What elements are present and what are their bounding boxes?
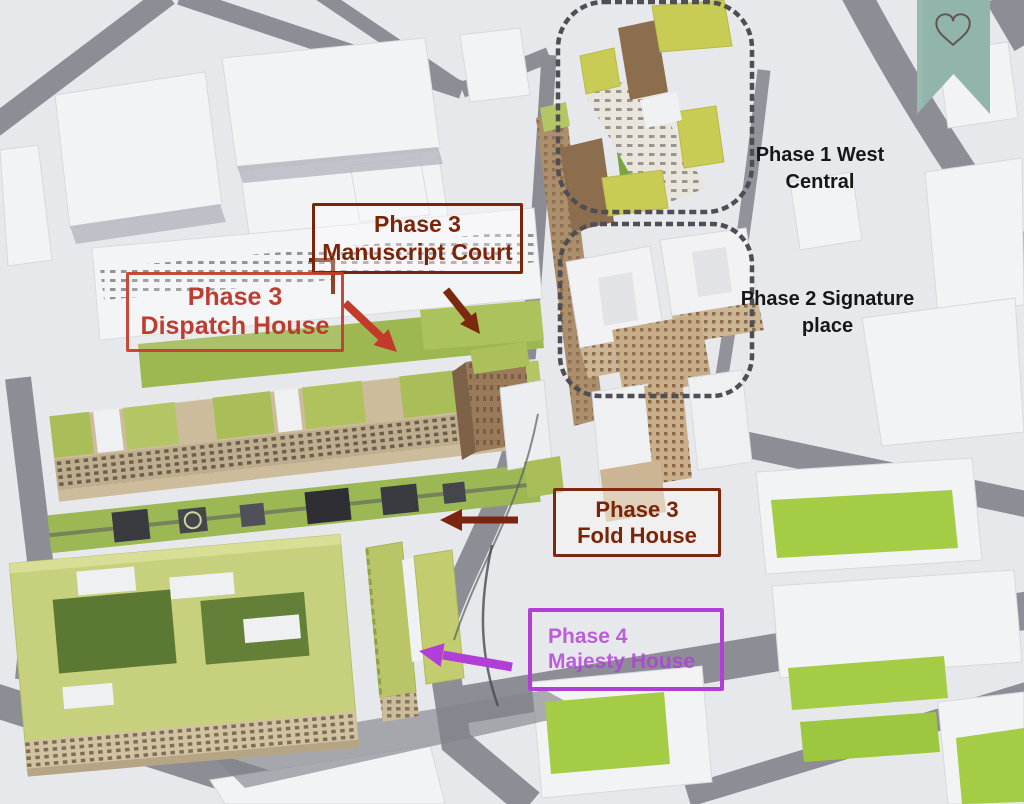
manuscript-court-callout: Phase 3 Manuscript Court: [312, 203, 523, 274]
fold-house-phase: Phase 3: [556, 497, 718, 523]
masterplan-render: [0, 0, 1024, 804]
majesty-house-phase: Phase 4: [548, 625, 720, 650]
phase2-phase: Phase 2: [741, 288, 817, 310]
fold-house-name: Fold House: [556, 523, 718, 549]
phase2-name: Signature place: [802, 288, 914, 337]
manuscript-court-phase: Phase 3: [315, 211, 520, 238]
phase1-label: Phase 1 West Central: [745, 142, 895, 196]
masterplan-screenshot: Phase 3 Manuscript Court Phase 3 Dispatc…: [0, 0, 1024, 804]
majesty-house-name: Majesty House: [548, 650, 720, 675]
dispatch-house-phase: Phase 3: [129, 283, 341, 313]
favourite-ribbon[interactable]: [917, 0, 990, 116]
dispatch-house-name: Dispatch House: [129, 312, 341, 342]
phase2-label: Phase 2 Signature place: [740, 286, 915, 340]
dispatch-house-callout: Phase 3 Dispatch House: [126, 272, 344, 352]
manuscript-court-name: Manuscript Court: [315, 239, 520, 266]
majesty-house-callout: Phase 4 Majesty House: [528, 608, 724, 691]
fold-house-callout: Phase 3 Fold House: [553, 488, 721, 557]
phase1-phase: Phase 1: [756, 144, 832, 166]
